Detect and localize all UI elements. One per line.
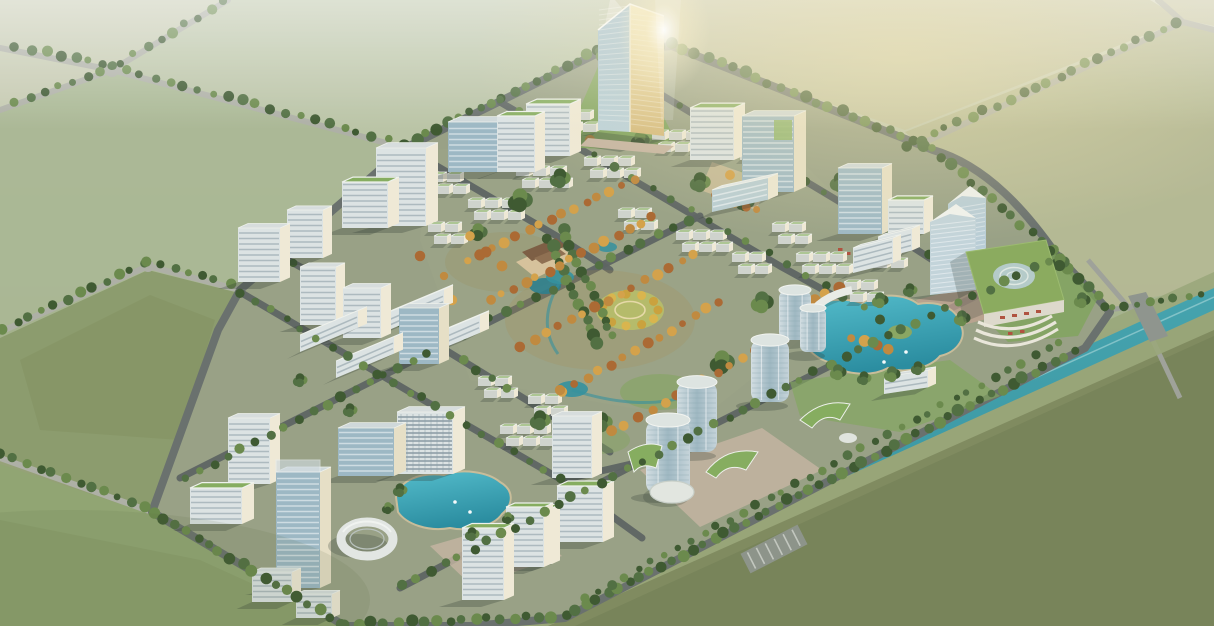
render-canvas bbox=[0, 0, 1214, 626]
aerial-masterplan-render bbox=[0, 0, 1214, 626]
